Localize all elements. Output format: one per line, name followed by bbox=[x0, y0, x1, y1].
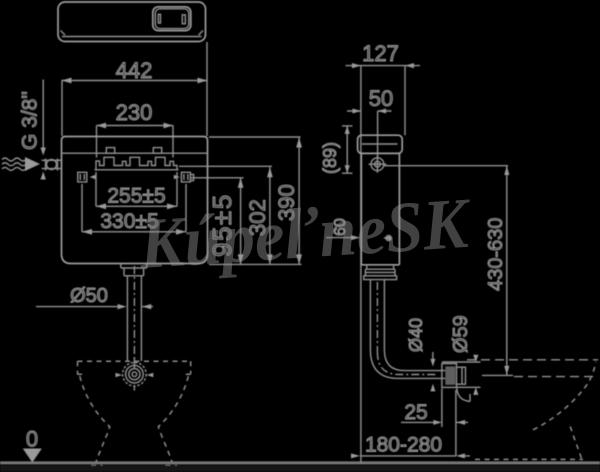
svg-text:Ø59: Ø59 bbox=[450, 315, 472, 353]
svg-text:Ø40: Ø40 bbox=[406, 318, 426, 352]
svg-text:302: 302 bbox=[245, 199, 270, 236]
svg-text:430-630: 430-630 bbox=[485, 218, 507, 291]
svg-text:230: 230 bbox=[116, 100, 153, 125]
svg-text:60: 60 bbox=[332, 218, 349, 236]
svg-text:Ø50: Ø50 bbox=[70, 285, 108, 307]
svg-text:(89): (89) bbox=[320, 142, 340, 174]
svg-text:95±5: 95±5 bbox=[207, 193, 237, 257]
svg-text:390: 390 bbox=[274, 184, 299, 221]
svg-text:G 3/8": G 3/8" bbox=[19, 91, 42, 150]
svg-text:330±5: 330±5 bbox=[100, 210, 158, 233]
svg-text:442: 442 bbox=[116, 58, 153, 83]
svg-text:255±5: 255±5 bbox=[107, 185, 165, 208]
svg-text:25: 25 bbox=[404, 401, 427, 424]
svg-text:50: 50 bbox=[369, 86, 393, 111]
svg-text:127: 127 bbox=[362, 41, 399, 66]
svg-text:0: 0 bbox=[26, 427, 38, 452]
svg-text:180-280: 180-280 bbox=[365, 434, 442, 457]
